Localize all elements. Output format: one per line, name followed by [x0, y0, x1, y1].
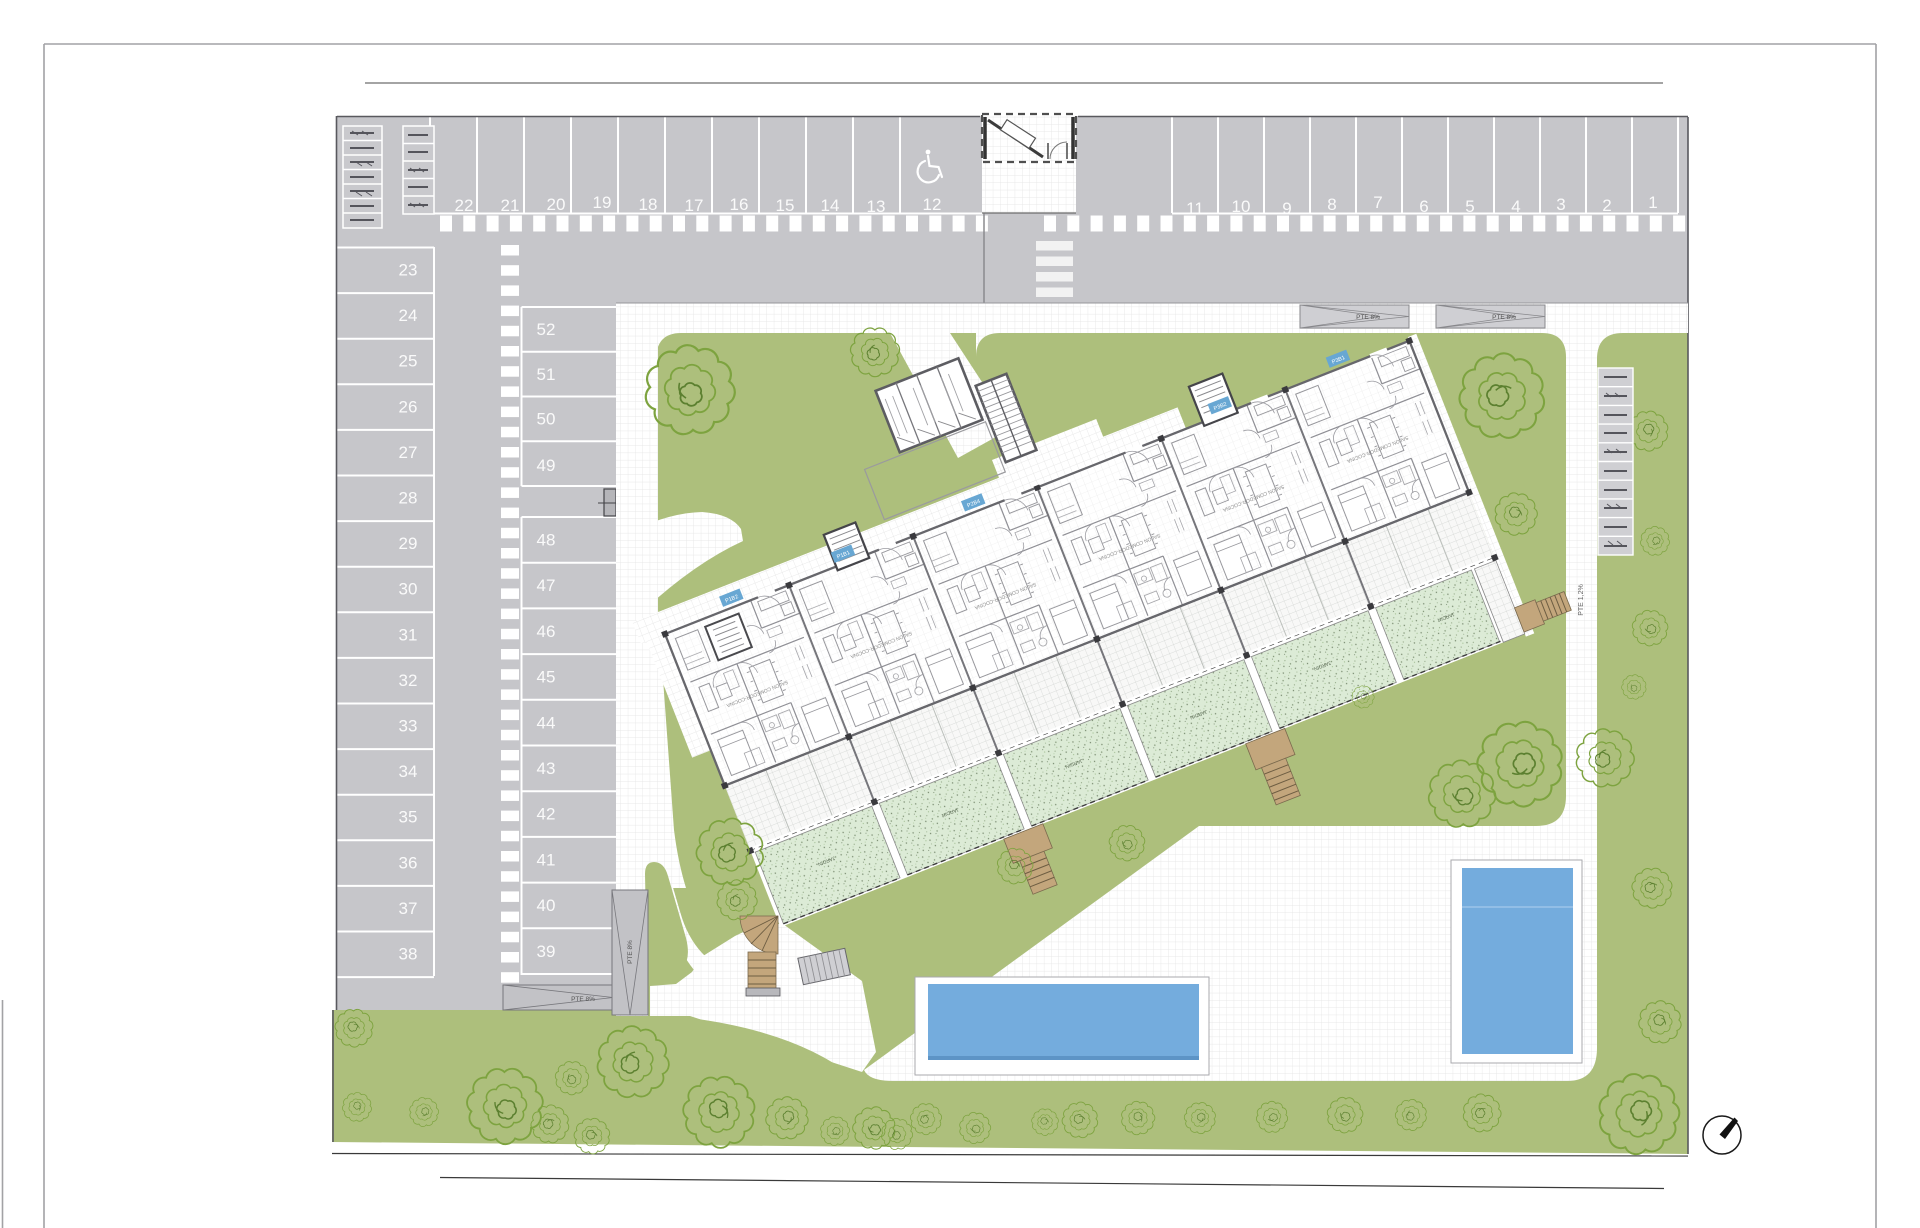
svg-text:50: 50 — [537, 410, 556, 429]
svg-text:17: 17 — [685, 196, 704, 215]
svg-text:10: 10 — [1232, 197, 1251, 216]
svg-text:32: 32 — [399, 671, 418, 690]
svg-text:PTE 8%: PTE 8% — [571, 996, 595, 1003]
svg-text:36: 36 — [399, 853, 418, 872]
svg-text:21: 21 — [501, 196, 520, 215]
svg-text:19: 19 — [593, 193, 612, 212]
svg-text:PTE 1,2%: PTE 1,2% — [1578, 584, 1585, 616]
svg-text:4: 4 — [1511, 197, 1520, 216]
svg-text:3: 3 — [1556, 195, 1565, 214]
svg-text:26: 26 — [399, 397, 418, 416]
svg-text:38: 38 — [399, 945, 418, 964]
svg-text:52: 52 — [537, 320, 556, 339]
svg-text:42: 42 — [537, 805, 556, 824]
svg-text:29: 29 — [399, 534, 418, 553]
svg-text:27: 27 — [399, 443, 418, 462]
svg-text:20: 20 — [547, 195, 566, 214]
svg-text:39: 39 — [537, 942, 556, 961]
svg-text:23: 23 — [399, 261, 418, 280]
svg-text:PTE 8%: PTE 8% — [1356, 314, 1380, 321]
svg-text:28: 28 — [399, 489, 418, 508]
svg-text:8: 8 — [1327, 195, 1336, 214]
svg-text:45: 45 — [537, 668, 556, 687]
svg-text:11: 11 — [1186, 199, 1204, 218]
svg-text:9: 9 — [1282, 199, 1291, 218]
svg-text:34: 34 — [399, 762, 418, 781]
svg-text:2: 2 — [1602, 196, 1611, 215]
svg-text:49: 49 — [537, 456, 556, 475]
svg-text:18: 18 — [639, 195, 658, 214]
svg-text:22: 22 — [455, 196, 474, 215]
svg-text:43: 43 — [537, 759, 556, 778]
svg-text:48: 48 — [537, 531, 556, 550]
svg-text:51: 51 — [537, 365, 556, 384]
svg-text:46: 46 — [537, 622, 556, 641]
svg-text:37: 37 — [399, 899, 418, 918]
svg-text:33: 33 — [399, 717, 418, 736]
svg-text:14: 14 — [821, 196, 840, 215]
svg-text:7: 7 — [1373, 193, 1382, 212]
svg-text:30: 30 — [399, 580, 418, 599]
svg-text:40: 40 — [537, 896, 556, 915]
svg-text:24: 24 — [399, 306, 418, 325]
svg-text:5: 5 — [1465, 197, 1474, 216]
svg-text:15: 15 — [776, 196, 795, 215]
svg-text:41: 41 — [537, 850, 556, 869]
svg-text:1: 1 — [1648, 193, 1657, 212]
svg-text:47: 47 — [537, 576, 556, 595]
svg-text:6: 6 — [1419, 197, 1428, 216]
svg-text:PTE 8%: PTE 8% — [627, 940, 634, 964]
svg-text:44: 44 — [537, 713, 556, 732]
svg-text:25: 25 — [399, 352, 418, 371]
svg-text:16: 16 — [730, 195, 749, 214]
svg-text:PTE 8%: PTE 8% — [1492, 314, 1516, 321]
svg-text:12: 12 — [923, 195, 942, 214]
svg-text:13: 13 — [867, 197, 886, 216]
svg-text:31: 31 — [399, 625, 418, 644]
svg-text:35: 35 — [399, 808, 418, 827]
